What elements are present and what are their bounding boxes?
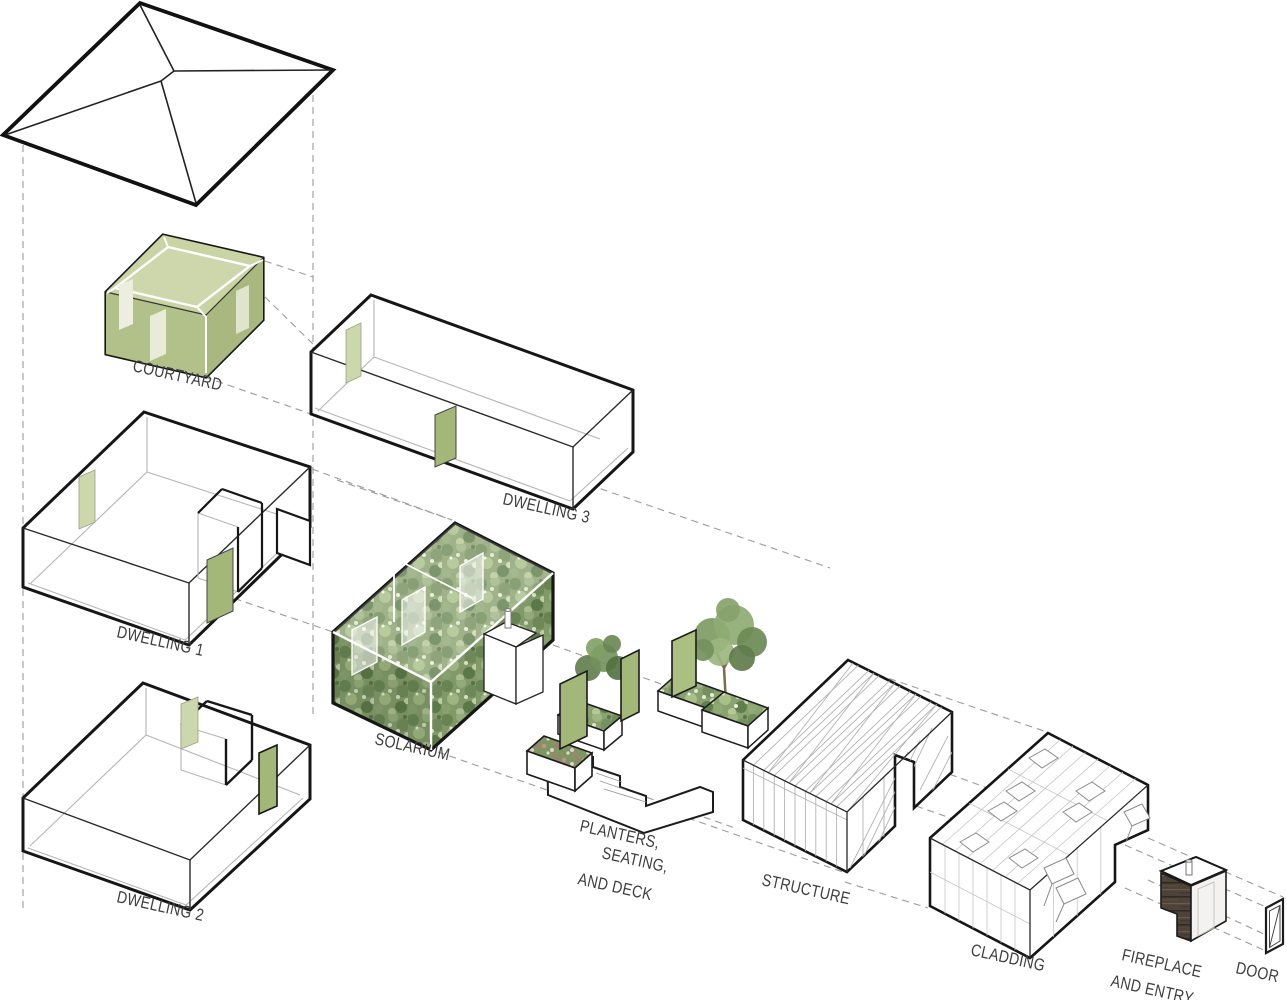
diagram-canvas: COURTYARD DWELLING 3 DWELLING 1 SOLARIUM…	[0, 0, 1287, 1000]
planters-label-line2: SEATING,	[600, 844, 670, 877]
exploded-axonometric-diagram: COURTYARD DWELLING 3 DWELLING 1 SOLARIUM…	[0, 0, 1287, 1000]
guide-line	[265, 297, 313, 344]
roof-volume	[3, 3, 333, 205]
structure-label: STRUCTURE	[760, 871, 852, 909]
dwelling-2-door-panel	[181, 697, 198, 749]
courtyard-door-opening	[119, 279, 133, 330]
fireplace-wood-body	[1161, 873, 1191, 941]
structure-volume	[743, 660, 952, 872]
cladding-outline	[930, 733, 1148, 958]
dwelling-1-outline	[23, 412, 310, 645]
door-label: DOOR	[1234, 959, 1281, 987]
planters-label-line3: AND DECK	[576, 870, 654, 904]
labels: COURTYARD DWELLING 3 DWELLING 1 SOLARIUM…	[115, 357, 1281, 1000]
courtyard-door-opening	[236, 285, 249, 334]
green-door-panel	[621, 650, 639, 721]
green-door-panel	[560, 671, 587, 749]
guide-line	[845, 882, 928, 908]
tree-foliage	[692, 598, 767, 671]
dwelling-1-door-panel	[79, 470, 95, 529]
door-volume	[1266, 899, 1283, 953]
dwelling-3-volume	[311, 295, 633, 509]
dwelling-2-door-panel	[259, 745, 277, 814]
dwelling-1-door-panel	[207, 548, 233, 623]
solarium-chimney-pipe	[505, 610, 511, 628]
deck-door-panels	[560, 630, 696, 749]
cladding-volume	[930, 733, 1150, 958]
guide-line	[578, 481, 830, 568]
guide-line	[265, 261, 313, 277]
guide-line	[312, 469, 452, 520]
dwelling-3-door-panel	[346, 323, 361, 383]
courtyard-volume	[106, 235, 263, 377]
courtyard-door-opening	[150, 309, 166, 361]
solarium-volume	[333, 523, 553, 750]
fireplace-chimney-pipe	[1186, 861, 1192, 875]
green-door-panel	[672, 630, 696, 697]
guide-line	[337, 480, 452, 520]
dwelling-1-volume	[23, 412, 310, 645]
dwelling-2-volume	[23, 683, 310, 910]
dwelling-3-door-panel	[435, 406, 456, 467]
